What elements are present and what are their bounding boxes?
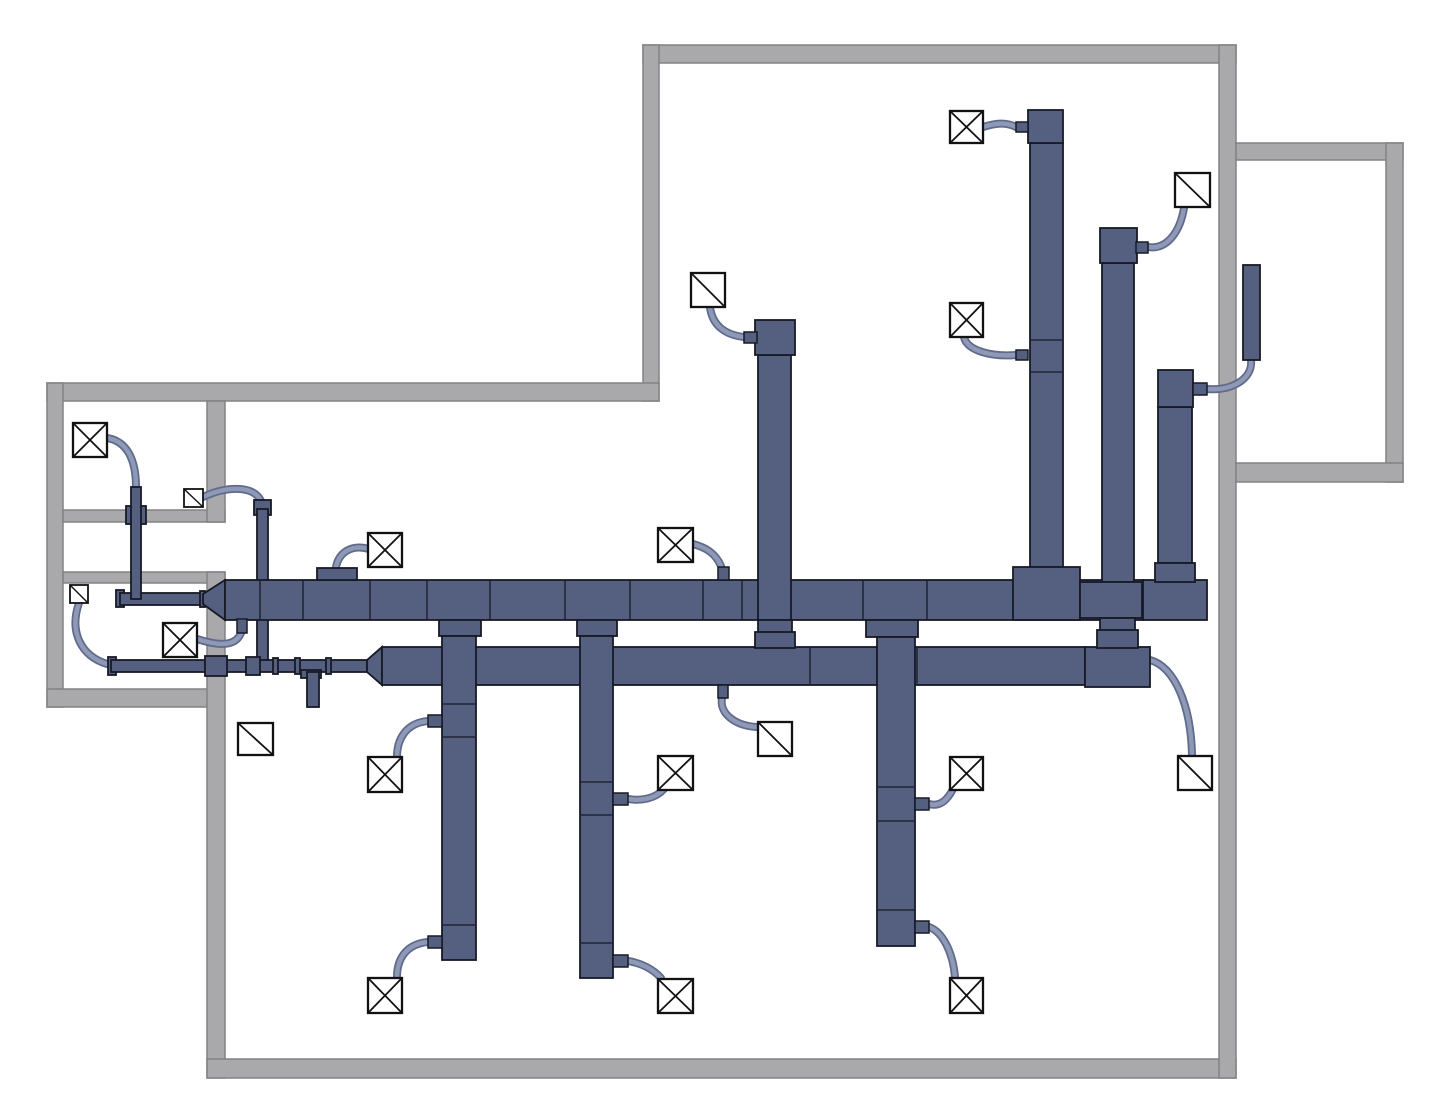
supply-diffuser-symbol: [368, 978, 402, 1013]
riser-neck: [758, 620, 792, 633]
riser-trunk-fitting: [1080, 582, 1142, 618]
return-grille-symbol: [1175, 173, 1210, 207]
supply-diffuser-symbol: [658, 528, 693, 562]
flex-duct: [397, 942, 428, 977]
wall-segment: [63, 572, 225, 583]
wall-segment: [47, 689, 210, 707]
duct-takeoff-stub: [744, 332, 757, 343]
wall-segment: [1386, 143, 1403, 482]
supply-diffuser-symbol: [950, 757, 983, 790]
room-riser-duct: [131, 487, 141, 599]
flex-duct: [107, 438, 136, 487]
riser-trunk-collar: [1013, 567, 1080, 620]
wall-segment: [1236, 463, 1403, 482]
lower-trunk-elbow: [1085, 647, 1150, 687]
duct-takeoff-stub: [1016, 350, 1028, 360]
riser-duct-head: [1028, 110, 1063, 143]
hvac-floor-plan-svg: [0, 0, 1451, 1100]
wall-segment: [643, 45, 659, 401]
main-supply-trunk: [225, 580, 1143, 620]
duct-takeoff-stub: [613, 955, 628, 967]
lower-supply-trunk: [382, 647, 1085, 685]
riser-trunk-collar: [1155, 563, 1195, 582]
wall-segment: [47, 383, 659, 401]
return-grille-symbol: [758, 722, 792, 756]
flex-duct: [1148, 208, 1184, 247]
branch-duct: [580, 636, 613, 978]
return-grille-symbol: [691, 273, 725, 307]
duct-joint-collar: [246, 657, 260, 675]
wall-segment: [207, 1059, 1236, 1078]
duct-takeoff-stub: [718, 567, 729, 580]
wall-segment: [207, 401, 225, 522]
branch-duct: [877, 637, 915, 946]
supply-diffuser-symbol: [73, 423, 107, 457]
riser-step-collar: [1097, 630, 1138, 648]
flex-duct: [397, 721, 428, 757]
supply-diffuser-symbol: [163, 623, 197, 657]
wall-segment: [1236, 143, 1403, 160]
riser-duct-head: [1100, 228, 1137, 263]
branch-trunk-collar: [439, 620, 481, 636]
supply-diffuser-symbol: [658, 756, 693, 790]
branch-trunk-collar: [577, 620, 617, 636]
supply-diffuser-symbol: [368, 533, 402, 567]
duct-takeoff-stub: [1193, 383, 1207, 395]
wall-crossing-collar: [205, 656, 227, 676]
supply-diffuser-symbol: [950, 978, 983, 1013]
riser-duct-head: [1158, 370, 1193, 407]
duct-takeoff-stub: [428, 715, 442, 727]
return-grille-symbol: [238, 723, 273, 755]
riser-duct-body: [1102, 263, 1134, 582]
hvac-floor-plan: [0, 0, 1451, 1100]
return-grille-symbol: [1178, 756, 1212, 790]
duct-takeoff-stub: [1136, 242, 1148, 253]
wall-segment: [1219, 45, 1236, 1078]
main-trunk-end-block: [1143, 580, 1207, 620]
riser-duct-body: [1158, 407, 1192, 563]
duct-takeoff-stub: [613, 793, 628, 805]
wall-segment: [643, 45, 1236, 63]
riser-step-collar: [755, 632, 795, 648]
duct-takeoff-stub: [237, 619, 247, 633]
drop-duct-stem: [307, 672, 319, 707]
trunk-top-takeoff: [317, 568, 357, 580]
supply-diffuser-symbol: [950, 303, 983, 337]
duct-joint-tick: [273, 658, 278, 674]
room-duct-bar: [1243, 265, 1260, 360]
riser-duct-body: [758, 355, 791, 620]
flex-duct: [1150, 660, 1192, 755]
wall-segment: [47, 383, 63, 707]
return-grille-symbol: [70, 585, 88, 603]
branch-duct: [442, 636, 476, 960]
duct-takeoff-stub: [1016, 122, 1028, 132]
duct-joint-tick: [295, 658, 300, 674]
duct-takeoff-stub: [915, 798, 929, 810]
supply-diffuser-symbol: [368, 757, 402, 792]
return-grille-symbol: [184, 489, 203, 507]
duct-joint-tick: [326, 658, 331, 674]
riser-duct-body: [1030, 143, 1063, 567]
branch-trunk-collar: [866, 620, 918, 637]
lower-trunk-taper: [367, 647, 382, 685]
duct-takeoff-stub: [428, 936, 442, 948]
riser-duct-head: [755, 320, 795, 355]
duct-takeoff-stub: [718, 685, 728, 698]
supply-diffuser-symbol: [950, 111, 983, 143]
supply-diffuser-symbol: [658, 979, 693, 1013]
duct-takeoff-stub: [915, 921, 929, 933]
